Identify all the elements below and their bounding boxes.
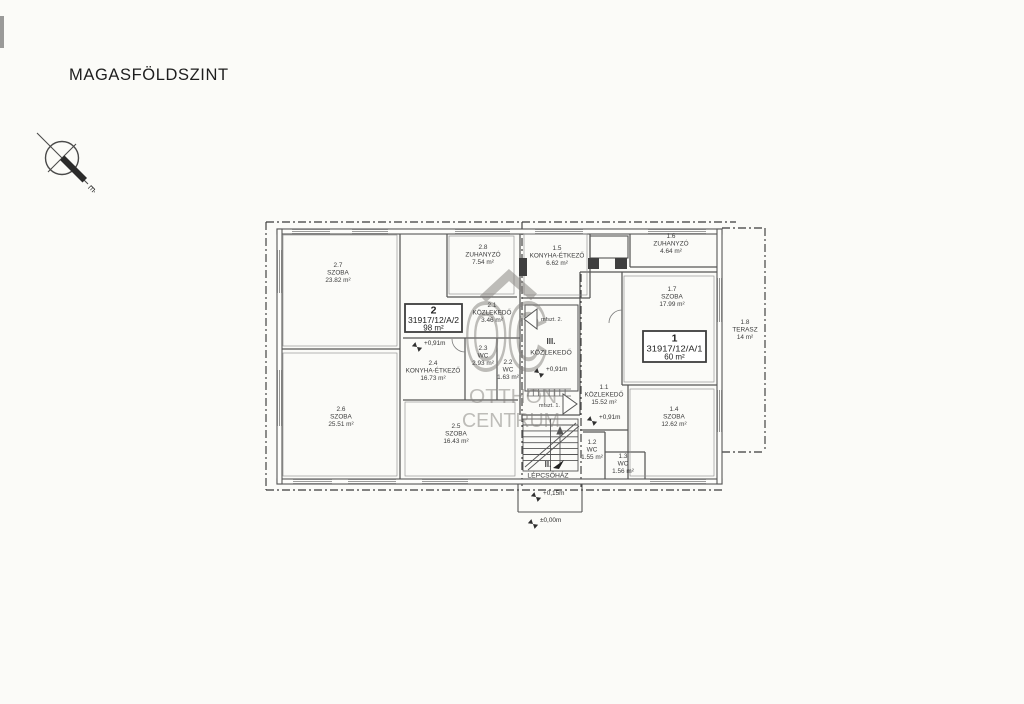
room-label: II.LÉPCSŐHÁZ <box>527 460 568 480</box>
entrance-arrow-unit1 <box>563 394 577 414</box>
window-mark <box>648 229 706 233</box>
room-label: 1.8TERASZ14 m² <box>732 319 757 341</box>
chimney-block <box>588 258 599 269</box>
level-text: +0,91m <box>599 414 621 421</box>
unit-2-area: 98 m² <box>423 324 444 333</box>
scanned-floor-plan-page: MAGASFÖLDSZINT <box>0 0 1024 704</box>
compass-rose: É <box>37 133 97 194</box>
room-label: 2.7SZOBA23.82 m² <box>325 262 350 284</box>
window-mark <box>352 229 388 233</box>
chimney-block <box>519 258 527 276</box>
window-mark <box>455 229 510 233</box>
floor-plan-drawing: OC OTTHON CENTRUM 2 31917/12/A/2 98 m² 1… <box>0 0 1024 704</box>
page-title: MAGASFÖLDSZINT <box>69 66 229 85</box>
window-mark <box>293 479 332 483</box>
room-label: 1.4SZOBA12.62 m² <box>661 406 686 428</box>
room-label: 1.5KONYHA-ÉTKEZŐ6.62 m² <box>530 245 585 267</box>
watermark-line2: CENTRUM <box>462 409 560 432</box>
window-mark <box>422 479 468 483</box>
room-label: 1.3WC1.56 m² <box>612 453 634 475</box>
level-text: ±0,00m <box>540 517 561 524</box>
chimney-block <box>615 258 627 269</box>
scan-artifact <box>0 16 4 48</box>
level-marker: +0,15m <box>531 490 565 502</box>
entrance-label-unit1: mfszt. 1. <box>539 403 561 409</box>
level-text: +0,91m <box>424 340 446 347</box>
level-text: +0,91m <box>546 366 568 373</box>
room-label: 1.1KÖZLEKEDŐ15.52 m² <box>584 384 623 406</box>
compass-north-label: É <box>86 183 97 194</box>
window-mark <box>348 479 396 483</box>
room-label: 1.2WC1.55 m² <box>581 439 603 461</box>
room-label: 2.8ZUHANYZÓ7.54 m² <box>465 244 500 266</box>
room-label: 1.6ZUHANYZÓ4.64 m² <box>653 233 688 255</box>
level-text: +0,15m <box>543 490 565 497</box>
window-mark <box>717 390 721 432</box>
door-swing-arrow <box>553 460 564 469</box>
room-label: 2.4KONYHA-ÉTKEZŐ16.73 m² <box>406 360 461 382</box>
window-mark <box>717 278 721 322</box>
window-mark <box>292 229 330 233</box>
room-label: 2.6SZOBA25.51 m² <box>328 406 353 428</box>
compass-needle <box>60 156 87 183</box>
unit-2-label-box: 2 31917/12/A/2 98 m² <box>405 304 462 333</box>
window-mark <box>277 370 281 426</box>
entrance-label-unit2: mfszt. 2. <box>541 317 563 323</box>
unit-1-area: 60 m² <box>664 353 685 362</box>
level-marker: +0,91m <box>587 414 621 426</box>
window-mark <box>535 229 583 233</box>
level-marker: +0,91m <box>412 340 446 352</box>
unit-1-label-box: 1 31917/12/A/1 60 m² <box>643 331 706 362</box>
room-label: 1.7SZOBA17.99 m² <box>659 286 684 308</box>
window-mark <box>277 250 281 293</box>
level-marker: ±0,00m <box>528 517 561 529</box>
window-mark <box>650 479 706 483</box>
